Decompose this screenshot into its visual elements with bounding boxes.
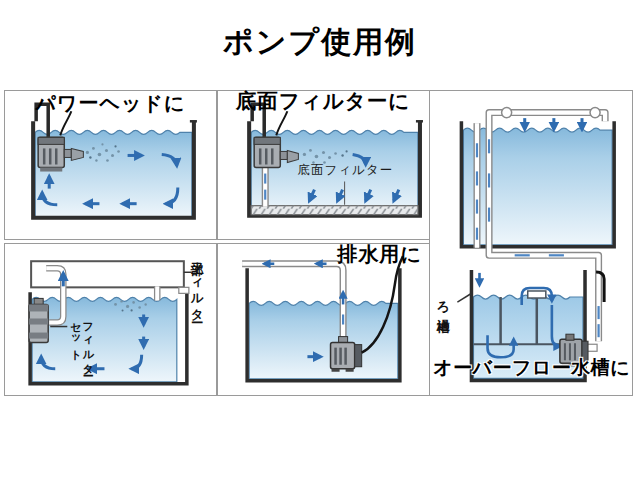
- page-title: ポンプ使用例: [0, 22, 640, 63]
- pump-set-label: フィルター セット: [69, 315, 93, 370]
- pump-icon: [29, 298, 48, 342]
- panel-drainage: 排水用に: [217, 243, 430, 396]
- panel-title-overflow: オーバーフロー水槽に: [433, 358, 630, 378]
- panel-top-filter: フィルター セット 上部フィルター: [4, 243, 217, 396]
- panel-title-power-head: パワーヘッドに: [5, 93, 216, 114]
- panel-power-head: パワーヘッドに: [4, 90, 217, 240]
- panel-bottom-filter: 底面フィルターに 底面フィルター: [217, 90, 430, 240]
- panel-title-bottom-filter: 底面フィルターに: [218, 91, 429, 113]
- tank-drawing-top-filter: [5, 244, 216, 395]
- inlet-arrows: [525, 118, 582, 129]
- sump-label-pointer: [457, 294, 470, 302]
- undergravel-plate-label: 底面フィルター: [298, 162, 394, 179]
- sump-label: ろ過槽: [436, 292, 450, 313]
- undergravel-plate: [251, 206, 418, 215]
- pump-set-label-line2: セット: [69, 315, 81, 370]
- pump-usage-diagram: ポンプ使用例: [0, 0, 640, 480]
- pump-set-label-line1: フィルター: [81, 315, 93, 370]
- top-filter-side-label: 上部フィルター: [191, 252, 204, 316]
- panel-title-drainage: 排水用に: [338, 244, 422, 265]
- rim-cap: [179, 287, 189, 293]
- tank-drawing-overflow: [430, 91, 632, 395]
- tank-drawing-drainage: [218, 244, 429, 395]
- panel-overflow-tank: ろ過槽 オーバーフロー水槽に: [429, 90, 633, 396]
